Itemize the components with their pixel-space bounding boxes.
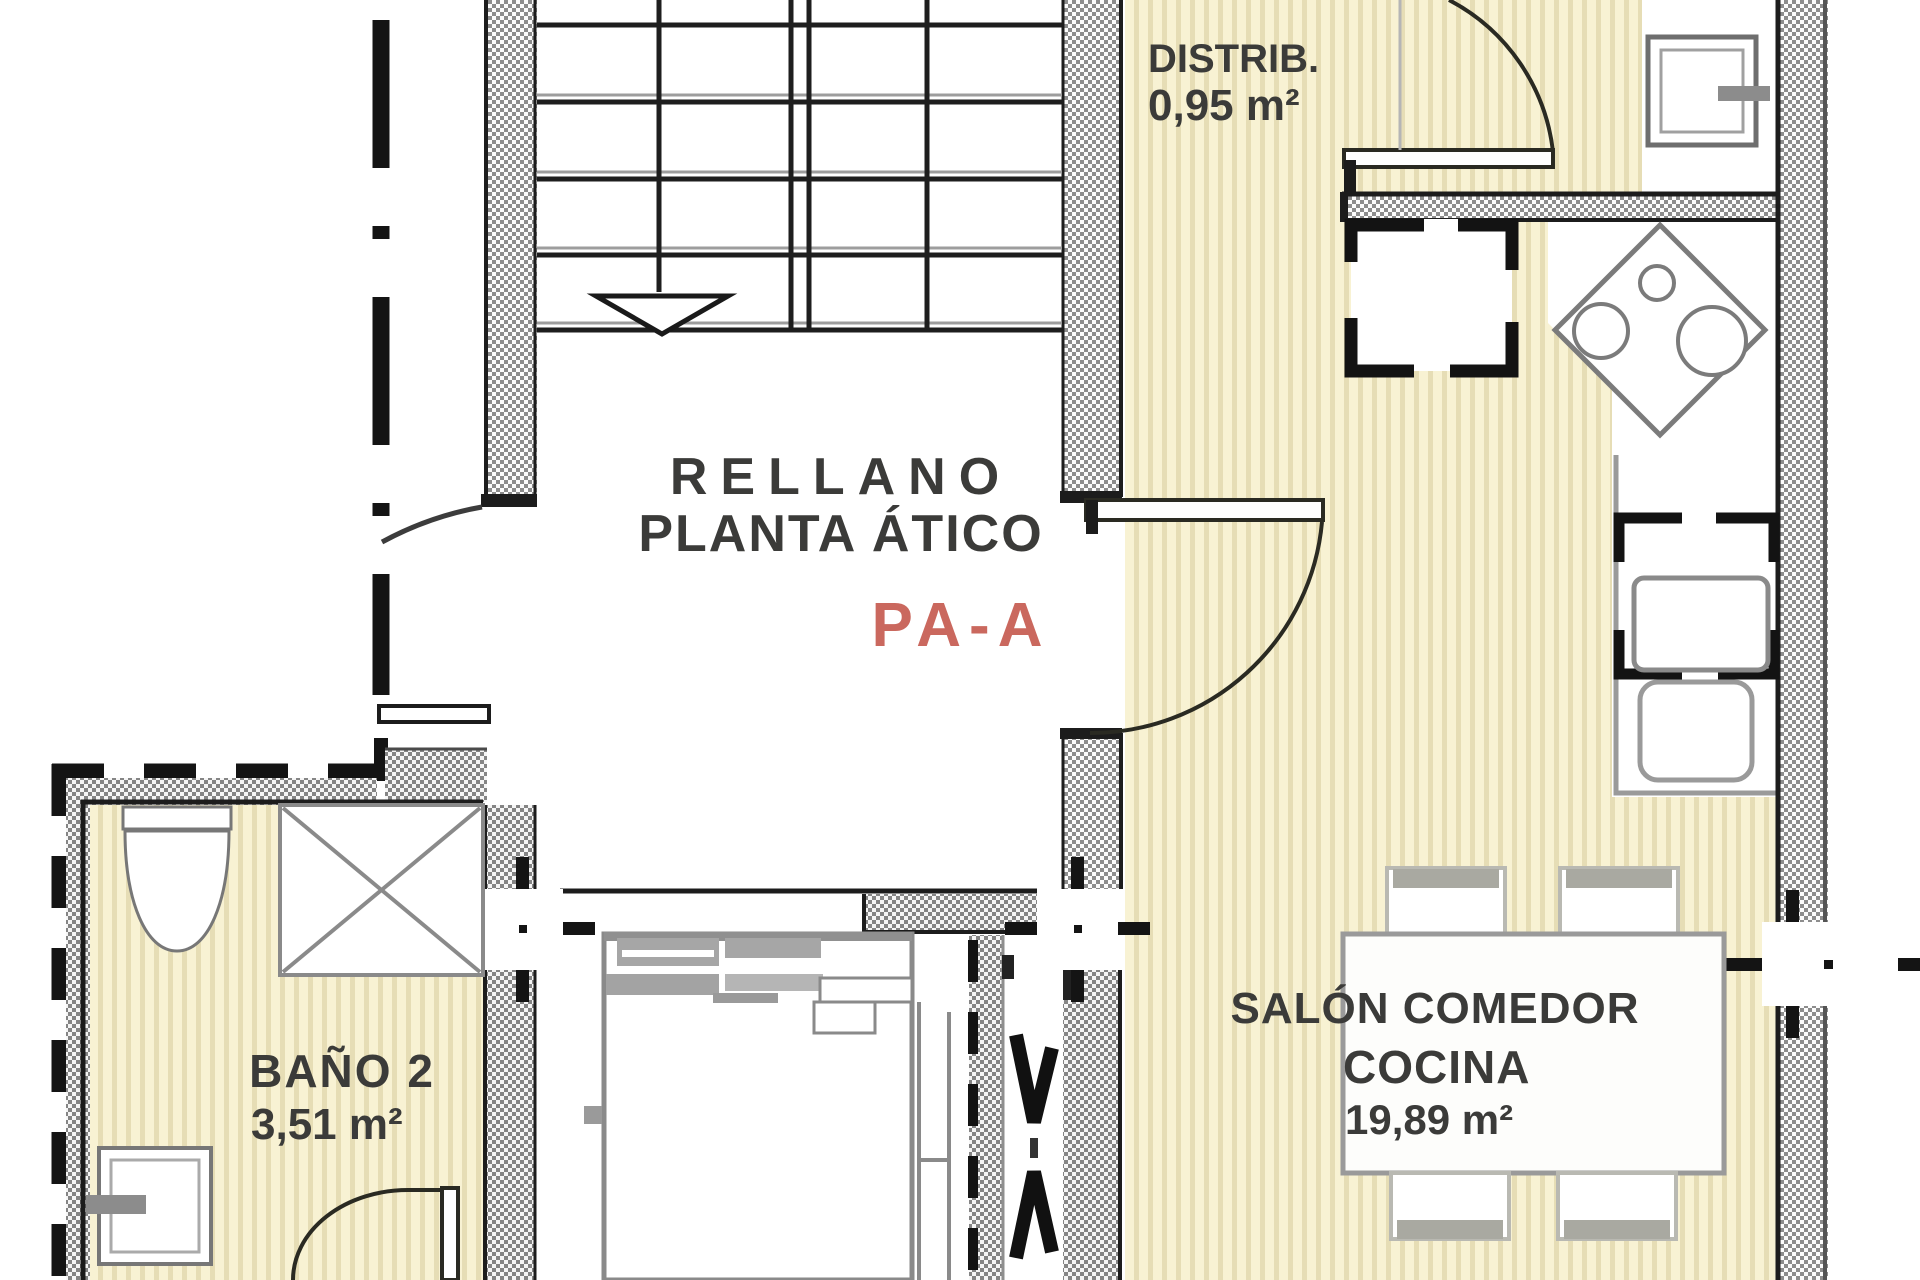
svg-text:3,51 m²: 3,51 m² — [251, 1100, 403, 1149]
svg-text:BAÑO 2: BAÑO 2 — [249, 1045, 435, 1097]
svg-text:DISTRIB.: DISTRIB. — [1148, 37, 1319, 81]
svg-text:SALÓN COMEDOR: SALÓN COMEDOR — [1231, 983, 1640, 1033]
svg-text:0,95 m²: 0,95 m² — [1148, 81, 1300, 130]
svg-text:PA-A: PA-A — [872, 591, 1051, 660]
svg-text:COCINA: COCINA — [1343, 1041, 1530, 1093]
svg-text:19,89 m²: 19,89 m² — [1345, 1096, 1513, 1143]
svg-text:RELLANO: RELLANO — [670, 448, 1012, 506]
svg-text:PLANTA ÁTICO: PLANTA ÁTICO — [638, 505, 1043, 563]
